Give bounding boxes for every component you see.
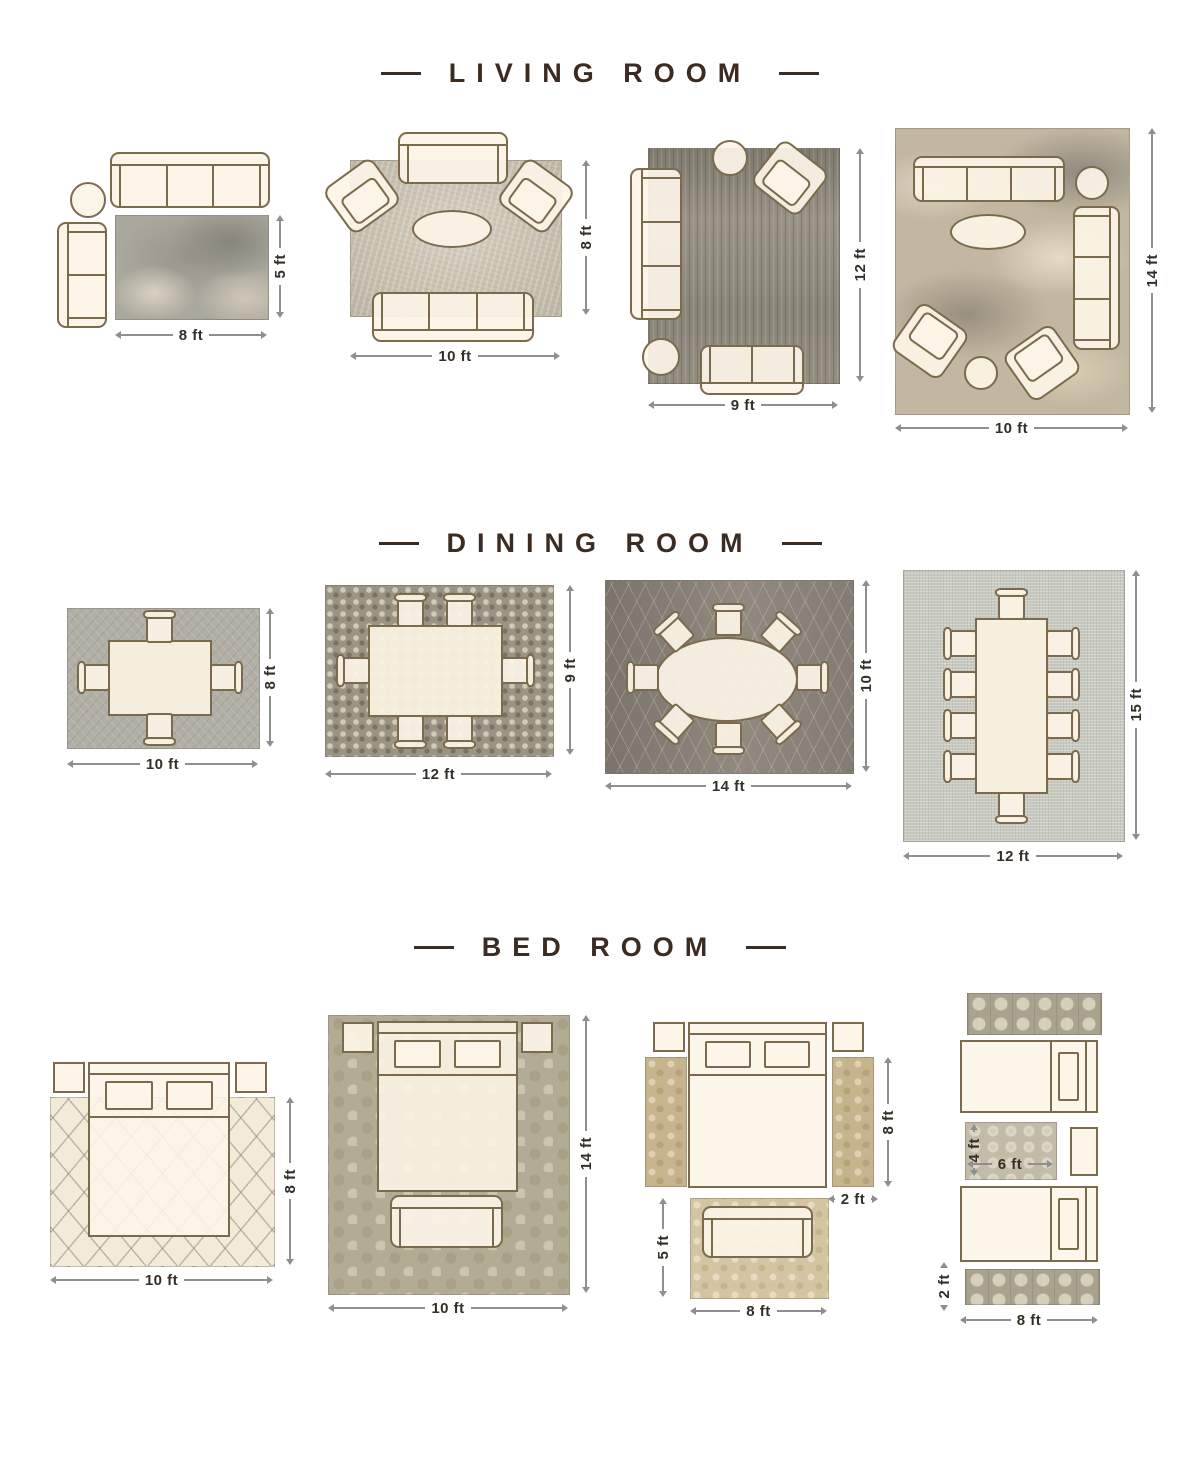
title-dash-left: [379, 542, 419, 545]
round-side-table: [70, 182, 106, 218]
title-dash-right: [782, 542, 822, 545]
nightstand: [521, 1022, 553, 1053]
runner-height-dimension: 8 ft: [880, 1057, 896, 1187]
rug-height-dimension: 5 ft: [655, 1198, 671, 1297]
title-dash-left: [381, 72, 421, 75]
bench: [702, 1206, 813, 1258]
oval-coffee-table: [412, 210, 492, 248]
sofa-3seat: [913, 156, 1065, 202]
sofa-3seat: [630, 168, 682, 320]
round-side-table: [964, 356, 998, 390]
section-title-text: LIVING ROOM: [449, 58, 752, 89]
dining-chair: [397, 599, 424, 627]
mid-rug-width-dimension: 6 ft: [967, 1156, 1053, 1172]
sofa-3seat: [110, 152, 270, 208]
width-dimension: 8 ft: [115, 327, 267, 343]
height-dimension: 5 ft: [272, 215, 288, 318]
height-dimension: 14 ft: [578, 1015, 594, 1293]
dining-chair: [998, 792, 1025, 818]
nightstand: [653, 1022, 685, 1052]
height-dimension: 8 ft: [282, 1097, 298, 1265]
dining-chair: [715, 609, 742, 636]
twin-bed: [960, 1040, 1098, 1113]
dining-chair: [83, 664, 110, 691]
height-dimension: 14 ft: [1144, 128, 1160, 413]
dining-chair: [446, 715, 473, 743]
loveseat: [57, 222, 107, 328]
nightstand: [342, 1022, 374, 1053]
twin-bed: [960, 1186, 1098, 1262]
dining-chair: [210, 664, 237, 691]
runner-width-dimension: 2 ft: [828, 1191, 878, 1207]
dining-chair: [446, 599, 473, 627]
height-dimension: 9 ft: [562, 585, 578, 755]
dining-chair: [501, 657, 529, 684]
rug-size-guide: LIVING ROOM 5 ft 8 ft: [0, 0, 1200, 1467]
width-dimension: 12 ft: [903, 848, 1123, 864]
runner-rug-2x8: [967, 993, 1102, 1035]
dining-chair: [1046, 671, 1074, 698]
nightstand: [832, 1022, 864, 1052]
round-side-table: [642, 338, 680, 376]
bed: [688, 1022, 827, 1188]
title-dash-left: [414, 946, 454, 949]
runner-rug-2x8: [965, 1269, 1100, 1305]
section-title-text: BED ROOM: [482, 932, 719, 963]
loveseat: [700, 345, 804, 395]
round-side-table: [712, 140, 748, 176]
dining-chair: [1046, 630, 1074, 657]
dining-chair: [342, 657, 370, 684]
section-title-dining-room: DINING ROOM: [0, 528, 1200, 559]
dining-chair: [146, 713, 173, 740]
oval-coffee-table: [950, 214, 1026, 250]
height-dimension: 10 ft: [858, 580, 874, 772]
height-dimension: 8 ft: [262, 608, 278, 747]
runner-rug-2x8: [832, 1057, 874, 1187]
nightstand: [53, 1062, 85, 1093]
width-dimension: 10 ft: [895, 420, 1128, 436]
title-dash-right: [746, 946, 786, 949]
nightstand: [1070, 1127, 1098, 1176]
runner-width-dimension: 8 ft: [960, 1312, 1098, 1328]
bed: [377, 1021, 518, 1192]
dining-chair: [1046, 712, 1074, 739]
width-dimension: 12 ft: [325, 766, 552, 782]
rug-5x8: [115, 215, 269, 320]
nightstand: [235, 1062, 267, 1093]
sofa-3seat: [1073, 206, 1120, 350]
dining-chair: [397, 715, 424, 743]
width-dimension: 10 ft: [328, 1300, 568, 1316]
height-dimension: 8 ft: [578, 160, 594, 315]
dining-table: [975, 618, 1048, 794]
width-dimension: 10 ft: [67, 756, 258, 772]
dining-chair: [949, 671, 977, 698]
dining-chair: [949, 712, 977, 739]
round-side-table: [1075, 166, 1109, 200]
section-title-text: DINING ROOM: [447, 528, 754, 559]
loveseat: [398, 132, 508, 184]
runner-rug-2x8: [645, 1057, 687, 1187]
dining-chair: [949, 630, 977, 657]
width-dimension: 10 ft: [50, 1272, 273, 1288]
bed: [88, 1062, 230, 1237]
height-dimension: 15 ft: [1128, 570, 1144, 840]
sofa-3seat: [372, 292, 534, 342]
dining-chair: [146, 616, 173, 643]
bench: [390, 1195, 503, 1248]
dining-chair: [1046, 753, 1074, 780]
section-title-living-room: LIVING ROOM: [0, 58, 1200, 89]
runner-height-dimension: 2 ft: [936, 1262, 952, 1310]
width-dimension: 14 ft: [605, 778, 852, 794]
dining-chair: [998, 594, 1025, 620]
section-title-bed-room: BED ROOM: [0, 932, 1200, 963]
dining-table: [108, 640, 212, 716]
width-dimension: 9 ft: [648, 397, 838, 413]
height-dimension: 12 ft: [852, 148, 868, 382]
dining-chair: [796, 664, 823, 691]
title-dash-right: [779, 72, 819, 75]
dining-chair: [949, 753, 977, 780]
rug-width-dimension: 8 ft: [690, 1303, 827, 1319]
dining-chair: [715, 722, 742, 749]
dining-chair: [632, 664, 659, 691]
dining-table: [368, 625, 503, 717]
width-dimension: 10 ft: [350, 348, 560, 364]
